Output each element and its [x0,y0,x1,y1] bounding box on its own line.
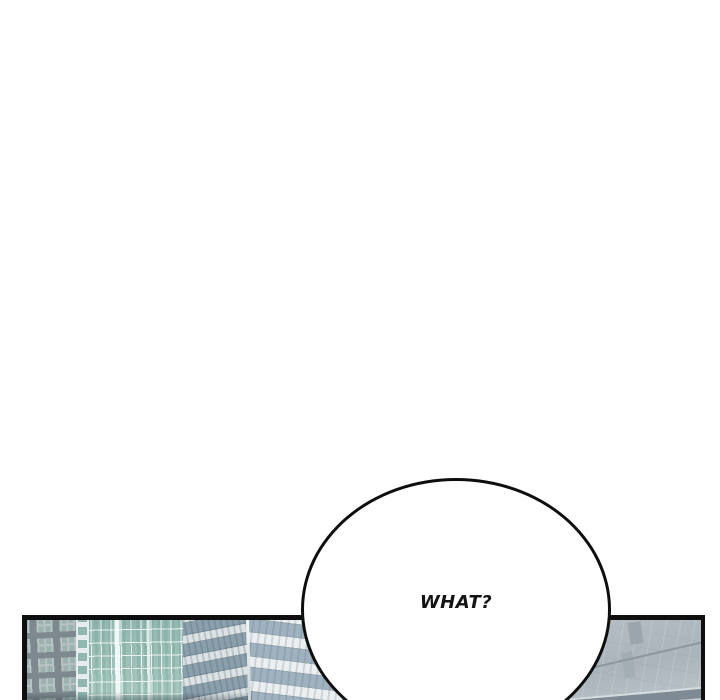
comic-page: WHAT? [0,0,720,700]
speech-text: WHAT? [420,592,492,613]
ground-shadow [27,692,252,700]
teal-glass-tower [89,620,184,700]
gray-window-building [27,620,77,700]
wall-step-detail [628,621,644,645]
corner-building-left-face [183,620,249,700]
speech-bubble: WHAT? [301,478,611,700]
wall-bottom-edge [567,686,701,700]
white-column-building [76,620,90,700]
wall-step-detail [621,651,636,678]
